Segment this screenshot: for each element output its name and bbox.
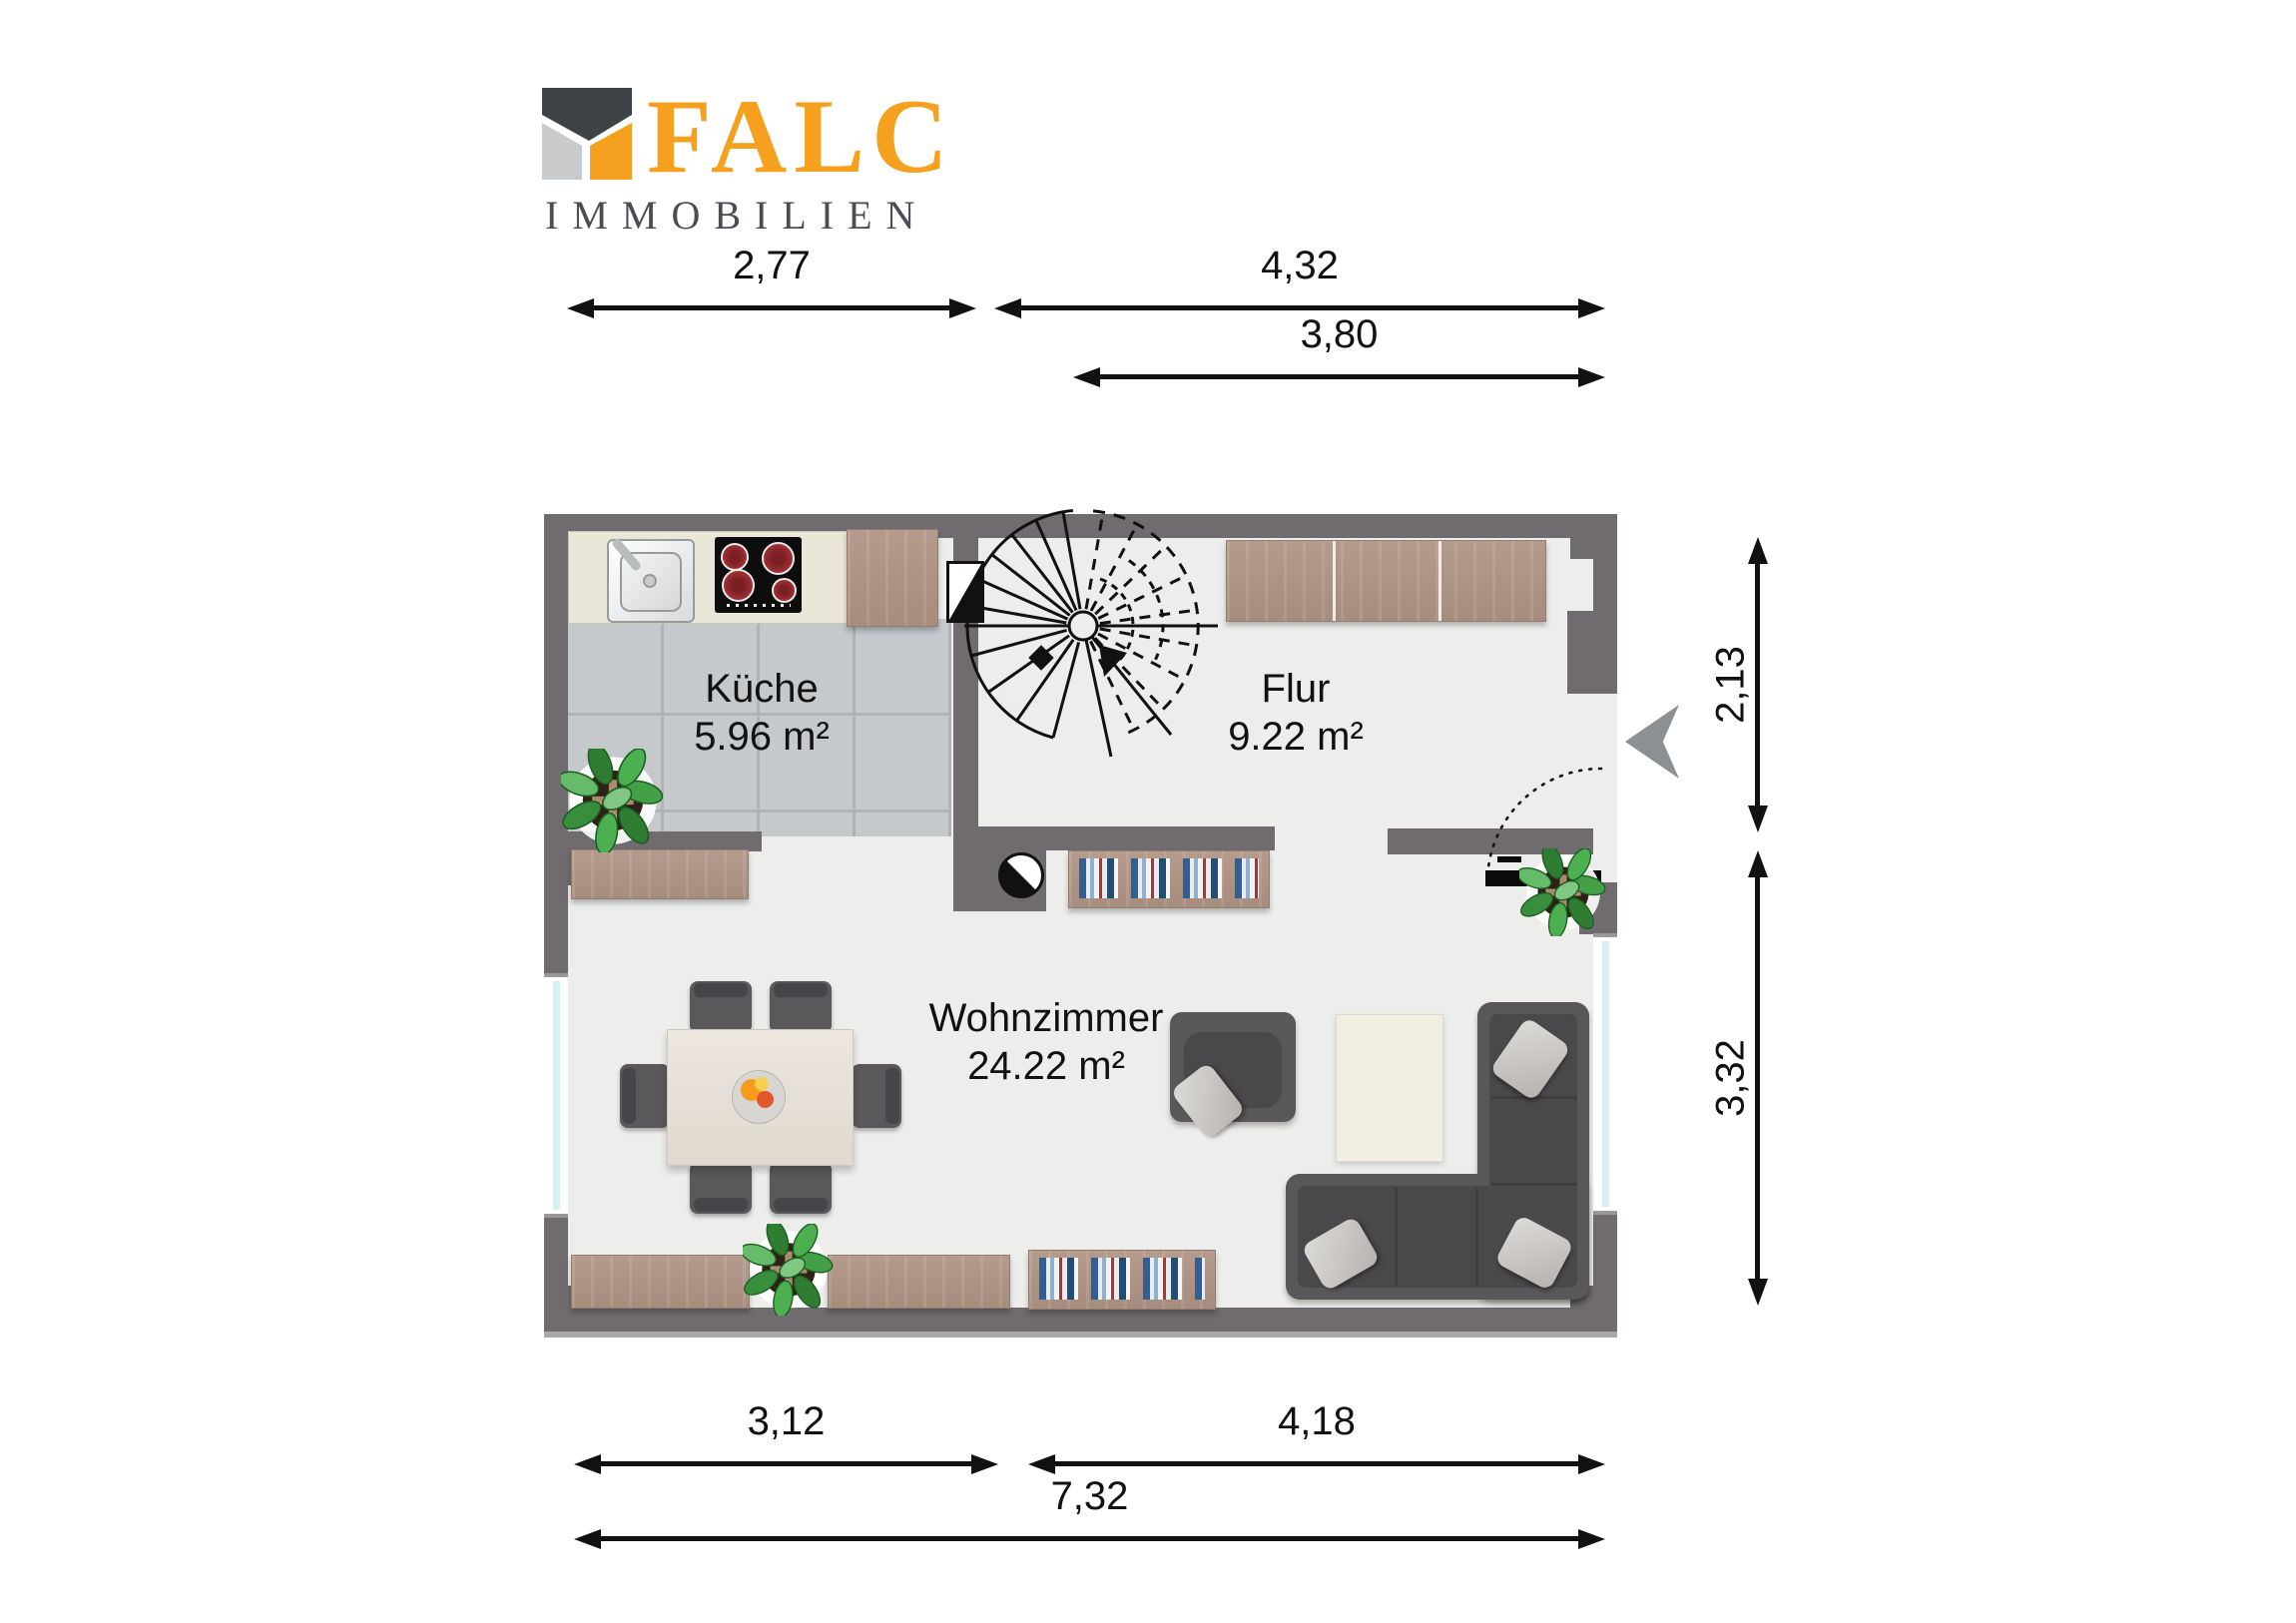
dim-bottom-732: 7,32 (574, 1483, 1605, 1541)
sideboard-bottom-mid (828, 1255, 1010, 1309)
cooktop (715, 537, 802, 613)
room-name: Flur (1171, 665, 1421, 713)
room-area: 9.22 m² (1171, 713, 1421, 761)
room-label-flur: Flur 9.22 m² (1171, 665, 1421, 761)
fruit-bowl-icon (732, 1070, 786, 1124)
books-row (1079, 858, 1259, 898)
bookshelf-bottom (1028, 1250, 1216, 1310)
room-label-wohnzimmer: Wohnzimmer 24.22 m² (896, 994, 1196, 1090)
door-jamb-upper (1567, 611, 1593, 694)
logo-house-icon (542, 88, 632, 180)
dining-chair (690, 981, 752, 1033)
stove-icon (998, 852, 1044, 898)
plant-icon (743, 1224, 835, 1316)
flur-wardrobe (1226, 540, 1546, 622)
dim-bottom-312: 3,12 (574, 1408, 998, 1466)
wall-bottom-shadow (544, 1332, 1617, 1338)
room-name: Wohnzimmer (896, 994, 1196, 1042)
rug (1336, 1014, 1443, 1162)
logo-subtitle-text: IMMOBILIEN (545, 192, 928, 239)
bookshelf-wall (1068, 850, 1270, 908)
kitchen-sink (607, 539, 695, 623)
entrance-arrow-icon (1625, 705, 1679, 779)
dining-chair (690, 1162, 752, 1214)
dining-chair (852, 1064, 901, 1128)
sideboard-left (571, 849, 749, 899)
plant-icon (561, 749, 665, 852)
room-label-kueche: Küche 5.96 m² (637, 665, 886, 761)
logo-brand-text: FALC (647, 76, 955, 198)
dim-top-380: 3,80 (1073, 321, 1605, 379)
dining-chair (770, 1162, 832, 1214)
dim-right-332: 3,32 (1702, 850, 1760, 1306)
dining-chair (770, 981, 832, 1033)
room-area: 5.96 m² (637, 713, 886, 761)
sideboard-bottom-left (571, 1255, 750, 1309)
books-row (1039, 1258, 1205, 1300)
floorplan-page: FALC IMMOBILIEN (0, 0, 2296, 1623)
dim-bottom-418: 4,18 (1028, 1408, 1605, 1466)
kitchen-cabinet (847, 529, 938, 627)
dining-chair (620, 1064, 670, 1128)
door-handle (1497, 856, 1521, 862)
dim-top-277: 2,77 (567, 253, 976, 310)
room-name: Küche (637, 665, 886, 713)
wall-left-upper (544, 514, 568, 973)
pilaster-top-right (1570, 514, 1617, 559)
plant-icon (1519, 848, 1607, 936)
wall-flur-living-a (977, 826, 1275, 850)
wall-bottom (544, 1308, 1617, 1332)
dim-top-432: 4,32 (994, 253, 1605, 310)
dim-right-213: 2,13 (1702, 537, 1760, 832)
room-area: 24.22 m² (896, 1042, 1196, 1090)
